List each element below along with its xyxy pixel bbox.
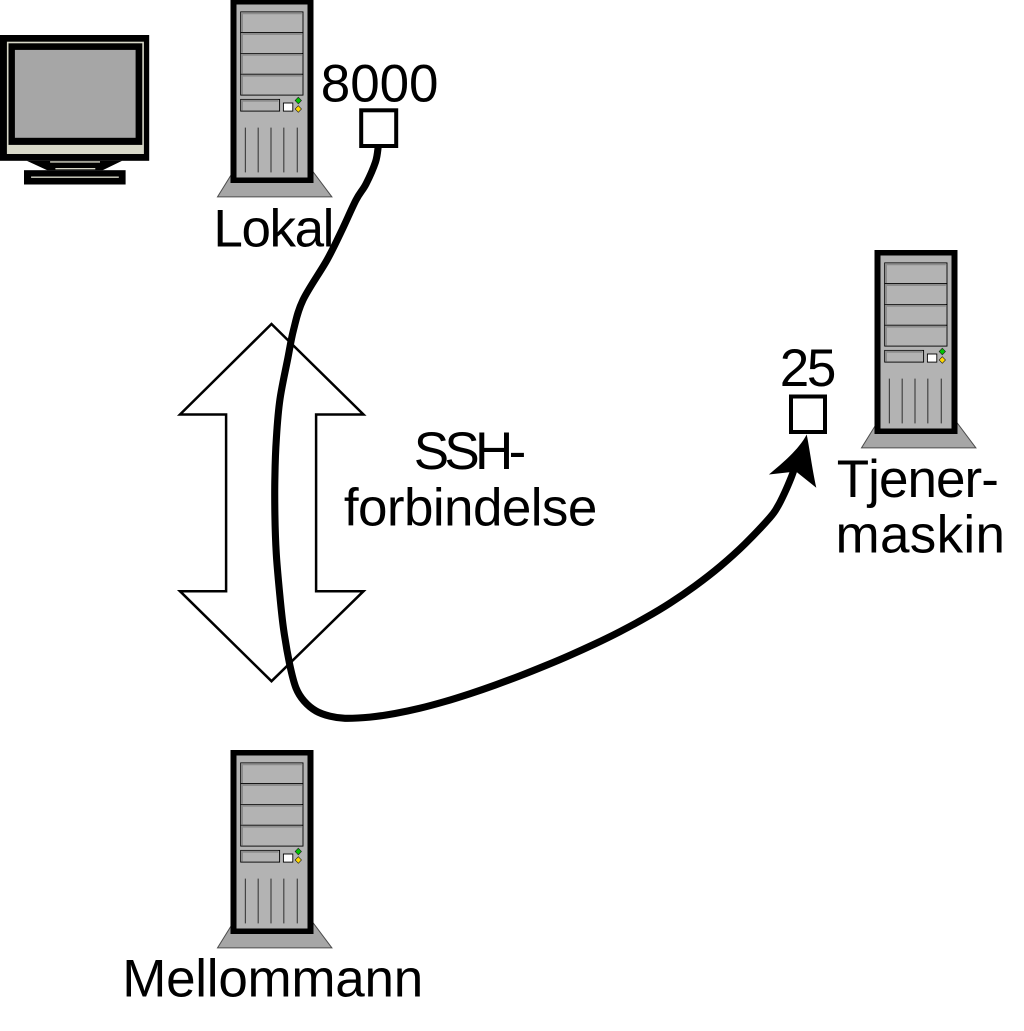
svg-text:Mellommann: Mellommann	[122, 949, 423, 1008]
svg-text:8000: 8000	[321, 55, 439, 114]
svg-text:SSH-: SSH-	[414, 422, 527, 481]
svg-text:maskin: maskin	[836, 506, 1006, 565]
svg-text:Tjener-: Tjener-	[837, 450, 999, 509]
svg-text:Lokal: Lokal	[213, 200, 334, 259]
svg-text:forbindelse: forbindelse	[344, 478, 597, 537]
svg-text:25: 25	[780, 339, 837, 398]
